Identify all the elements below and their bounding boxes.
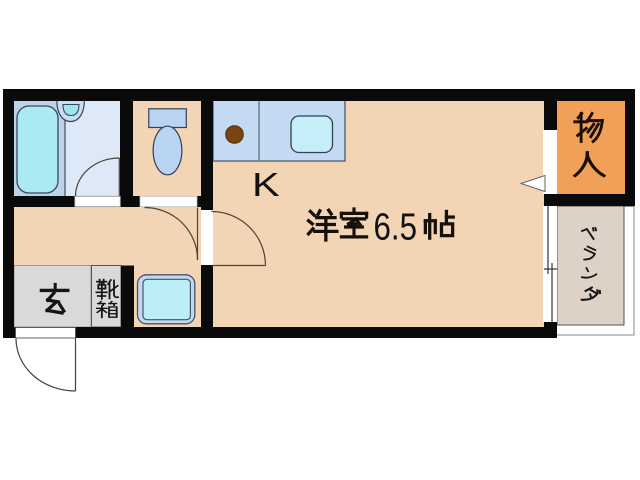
svg-text:K: K	[252, 166, 280, 203]
svg-text:6.5: 6.5	[374, 207, 418, 249]
